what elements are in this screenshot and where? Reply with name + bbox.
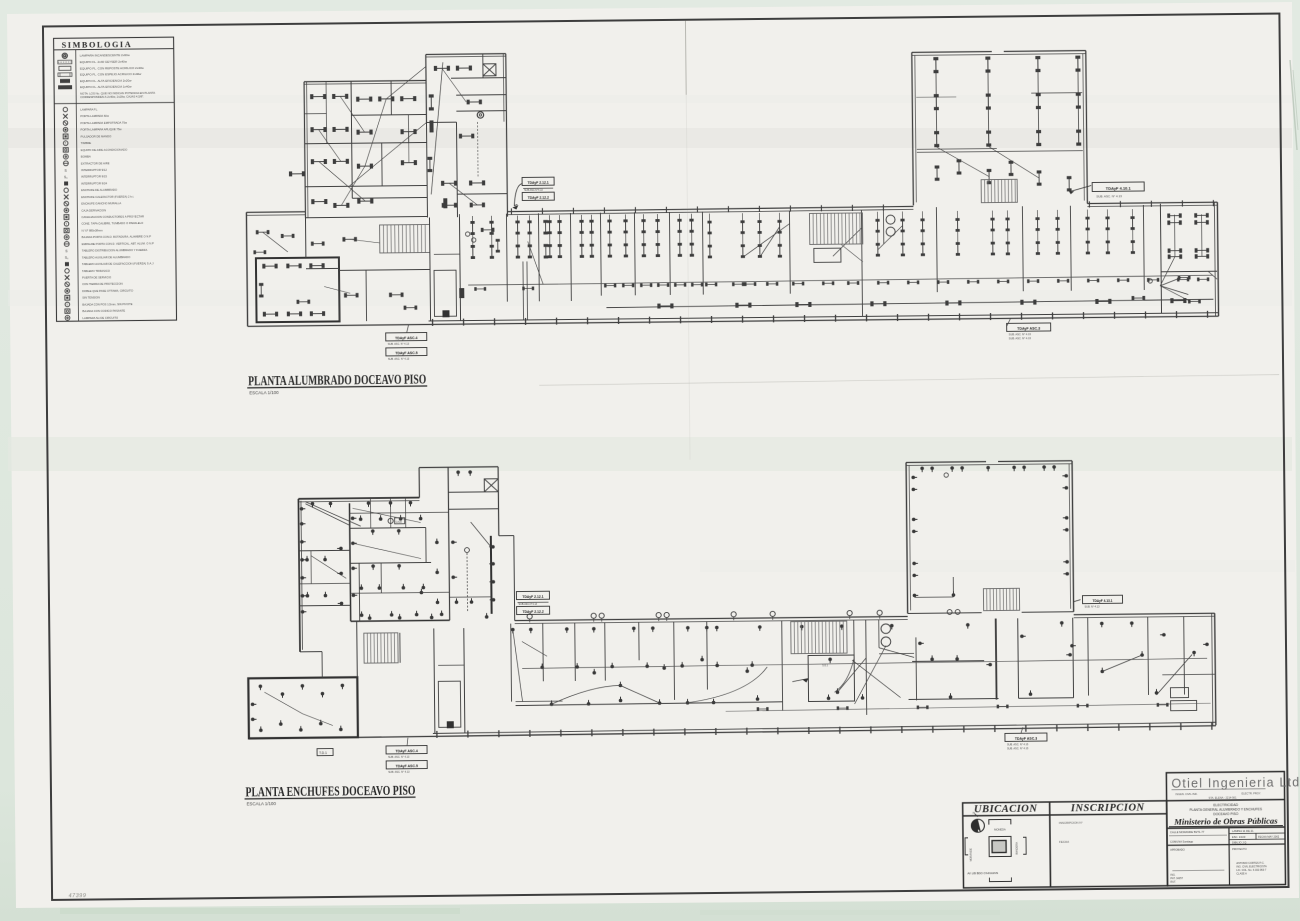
svg-text:EQUIPO FL. 2x40 GEYSER 2x40w: EQUIPO FL. 2x40 GEYSER 2x40w [80,60,128,65]
svg-text:DIBUJO J.Q.: DIBUJO J.Q. [1232,840,1247,844]
svg-text:INTERRUPTOR 9/15: INTERRUPTOR 9/15 [81,175,107,179]
svg-text:MONEDA: MONEDA [994,827,1006,831]
svg-text:SUB. N° 4.13: SUB. N° 4.13 [1085,605,1101,608]
svg-text:TDAyF 2.12.1: TDAyF 2.12.1 [528,181,549,185]
svg-text:CANALIZACION CONDUCTORES A PRO: CANALIZACION CONDUCTORES A PROYECTAR [81,214,144,219]
svg-text:SUB. ASC. N° 4.13: SUB. ASC. N° 4.13 [1096,194,1122,198]
svg-text:SUB.ASC.N°4.13: SUB.ASC.N°4.13 [519,603,538,606]
svg-text:ENCHUFE CALEFACTOR (FUERZA) 2: ENCHUFE CALEFACTOR (FUERZA) 2 h.t. [81,194,134,199]
svg-text:INGEN. CIVIL IND.: INGEN. CIVIL IND. [1176,792,1198,796]
svg-text:CALLE MORANDE 59/71-77: CALLE MORANDE 59/71-77 [1170,830,1205,834]
svg-text:SUB. ASC. N° 4.13: SUB. ASC. N° 4.13 [388,756,410,759]
svg-text:STA. ELENA - 2214-561: STA. ELENA - 2214-561 [1209,796,1238,800]
svg-text:PROYECTO: PROYECTO [1232,847,1247,851]
svg-text:INSCRIPCION: INSCRIPCION [1070,802,1145,814]
svg-text:PORTA LAMPARA EMPOTRADA 75w: PORTA LAMPARA EMPOTRADA 75w [80,121,127,125]
svg-text:BOMBA: BOMBA [81,155,91,159]
svg-text:N.Y.F 880x38mm: N.Y.F 880x38mm [82,228,104,232]
svg-text:ESCALA 1/100: ESCALA 1/100 [247,801,277,806]
svg-text:FECHA MAY 2002: FECHA MAY 2002 [1258,835,1280,839]
svg-text:ELECTR. PROY.: ELECTR. PROY. [1242,791,1262,795]
svg-text:TDAyF ASC.4: TDAyF ASC.4 [395,336,417,340]
svg-text:PORTA LAMPARA 60w: PORTA LAMPARA 60w [80,114,108,118]
svg-text:S.E.1: S.E.1 [822,664,829,667]
svg-text:CONE. TAPA CALIBRE, TUMBADO O: CONE. TAPA CALIBRE, TUMBADO O PARALELO [82,221,144,226]
svg-text:TABLERO DISTRIBUCION ALUMBRADO: TABLERO DISTRIBUCION ALUMBRADO Y FUERZA [82,248,148,253]
svg-text:DOBLE QUE PASE OTTAWA, CIRCUIT: DOBLE QUE PASE OTTAWA, CIRCUITO [82,289,133,294]
svg-text:TDAyF ASC.4: TDAyF ASC.4 [395,749,417,753]
svg-text:TDAyF ASC.3: TDAyF ASC.3 [1015,737,1037,741]
svg-text:SUB. ASC. N° 4.13: SUB. ASC. N° 4.13 [1009,336,1032,340]
svg-text:LAMINA 11 DE 21: LAMINA 11 DE 21 [1232,829,1254,833]
svg-text:PORTA LAMPARA APLIQUE 75w: PORTA LAMPARA APLIQUE 75w [81,127,122,131]
svg-text:N: N [973,811,975,815]
svg-text:EXTRACTOR DE AIRE: EXTRACTOR DE AIRE [81,161,110,165]
svg-text:EMPALME PORTA CON.D. VERTICAL,: EMPALME PORTA CON.D. VERTICAL, ABT. ALUM… [82,241,154,246]
svg-text:BAJADA PORTA CON.D. BOTADURA,: BAJADA PORTA CON.D. BOTADURA, ALAMBRE O … [82,235,152,240]
svg-text:LAMPARA INCANDESCENTE 2x60w: LAMPARA INCANDESCENTE 2x60w [80,53,131,58]
svg-text:SUB. ASC. N° 4.13: SUB. ASC. N° 4.13 [1007,747,1029,750]
svg-text:CAJA: CAJA [396,521,403,524]
svg-text:INTERRUPTOR 9/12: INTERRUPTOR 9/12 [81,168,107,172]
svg-text:RUT.: RUT. [1170,881,1176,884]
svg-text:AV LIB BDO O’HIGGINS: AV LIB BDO O’HIGGINS [967,871,998,875]
svg-text:ESCALA 1/100: ESCALA 1/100 [249,390,279,395]
svg-text:TIMBRE: TIMBRE [81,141,92,145]
svg-text:BAJADA CON POS 1,5mm, SIN PIVO: BAJADA CON POS 1,5mm, SIN PIVOTE [82,302,132,307]
svg-text:47399: 47399 [69,893,87,899]
svg-text:APROBADO: APROBADO [1170,848,1185,852]
svg-text:INTERRUPTOR 9/24: INTERRUPTOR 9/24 [81,181,107,185]
svg-text:SIN TENSION: SIN TENSION [82,296,100,300]
svg-text:SUB. ASC. N° 4.13: SUB. ASC. N° 4.13 [388,343,410,346]
svg-text:SUB.ASC.N°4.13: SUB.ASC.N°4.13 [524,189,543,192]
svg-text:SUB. ASC. N° 4.13: SUB. ASC. N° 4.13 [388,771,410,774]
svg-text:SUB. ASC. N° 4.13: SUB. ASC. N° 4.13 [388,358,410,361]
svg-text:FECHA: FECHA [1059,840,1069,844]
svg-text:EQUIPO FL. ALTA EFICIENCIA 1x4: EQUIPO FL. ALTA EFICIENCIA 1x40w [80,85,132,90]
svg-text:CLASE A: CLASE A [1236,872,1247,875]
svg-text:EQUIPO FL. CON REPOSTE ACRILIC: EQUIPO FL. CON REPOSTE ACRILICO 2x40w [80,66,145,71]
svg-text:TDAyF 2.12.1: TDAyF 2.12.1 [522,595,543,599]
svg-text:SUB. ASC. N° 4.13: SUB. ASC. N° 4.13 [1007,743,1029,746]
svg-text:CORRESPONDEN A 2x40w, 2x20w, C: CORRESPONDEN A 2x40w, 2x20w, CAJAS 4,5/8… [80,94,144,99]
svg-text:Otiel Ingenieria Ltda.: Otiel Ingenieria Ltda. [1171,775,1300,790]
svg-text:LAMPARA FL.: LAMPARA FL. [80,107,98,111]
svg-text:ESC. 1/100: ESC. 1/100 [1232,835,1246,839]
svg-text:TDAyF 4.10.1: TDAyF 4.10.1 [1106,186,1132,191]
svg-text:ENCHUFE GANCHO MURALLA: ENCHUFE GANCHO MURALLA [81,201,121,205]
svg-text:ENCHUFE DE ALUMBRADO: ENCHUFE DE ALUMBRADO [81,188,117,192]
svg-text:COMUNA Santiago: COMUNA Santiago [1170,839,1194,843]
svg-text:MORANDE: MORANDE [969,848,973,862]
svg-text:CON TIERRA DE PROTECCION: CON TIERRA DE PROTECCION [82,282,122,286]
svg-text:TABLERO AUXILIAR DE CALEFACCIO: TABLERO AUXILIAR DE CALEFACCION (FUERZA)… [82,261,154,266]
svg-text:TDAyF ASC.3: TDAyF ASC.3 [1017,326,1040,330]
svg-text:CAJA DERIVACION: CAJA DERIVACION [81,208,106,212]
svg-text:EQUIPO FL. CON ESPEJO ACRILICO: EQUIPO FL. CON ESPEJO ACRILICO 2x40w [80,72,142,77]
svg-text:TDAyF 2.12.2: TDAyF 2.12.2 [528,196,549,200]
svg-text:PULSADOR DE MANDO: PULSADOR DE MANDO [81,134,112,138]
svg-text:SUB. ASC. N° 4.13: SUB. ASC. N° 4.13 [1009,332,1032,336]
svg-text:BAJADA CON CODIGO PASANTE: BAJADA CON CODIGO PASANTE [82,309,125,313]
svg-text:BANDERA: BANDERA [1015,842,1019,855]
svg-text:SIMBOLOGIA: SIMBOLOGIA [62,40,133,50]
svg-text:TABLERO AUXILIAR DE ALUMBRADO: TABLERO AUXILIAR DE ALUMBRADO [82,255,130,260]
svg-text:TDAyF ASC.5: TDAyF ASC.5 [396,764,418,768]
svg-text:TDAyF 2.12.2: TDAyF 2.12.2 [523,610,544,614]
svg-text:TDAyF 4.13.1: TDAyF 4.13.1 [1093,599,1113,603]
svg-text:LAMPARA No DE CIRCUITO: LAMPARA No DE CIRCUITO [82,316,118,320]
svg-text:EQUIPO DE AIRE ACONDICIONADO: EQUIPO DE AIRE ACONDICIONADO [81,147,128,151]
svg-text:TDAyF ASC.5: TDAyF ASC.5 [395,351,417,355]
svg-text:Ministerio de Obras Públicas: Ministerio de Obras Públicas [1173,816,1278,827]
svg-text:UBICACION: UBICACION [974,804,1038,816]
svg-text:T.D.1: T.D.1 [319,751,327,755]
svg-text:TABLERO TRIFASICO: TABLERO TRIFASICO [82,269,110,273]
svg-text:INSCRIPCION N°: INSCRIPCION N° [1059,821,1084,825]
svg-text:PUERTA DE SERVICIO: PUERTA DE SERVICIO [82,275,111,279]
svg-text:EQUIPO FL. ALTA EFICIENCIA 2x2: EQUIPO FL. ALTA EFICIENCIA 2x20w [80,78,132,83]
